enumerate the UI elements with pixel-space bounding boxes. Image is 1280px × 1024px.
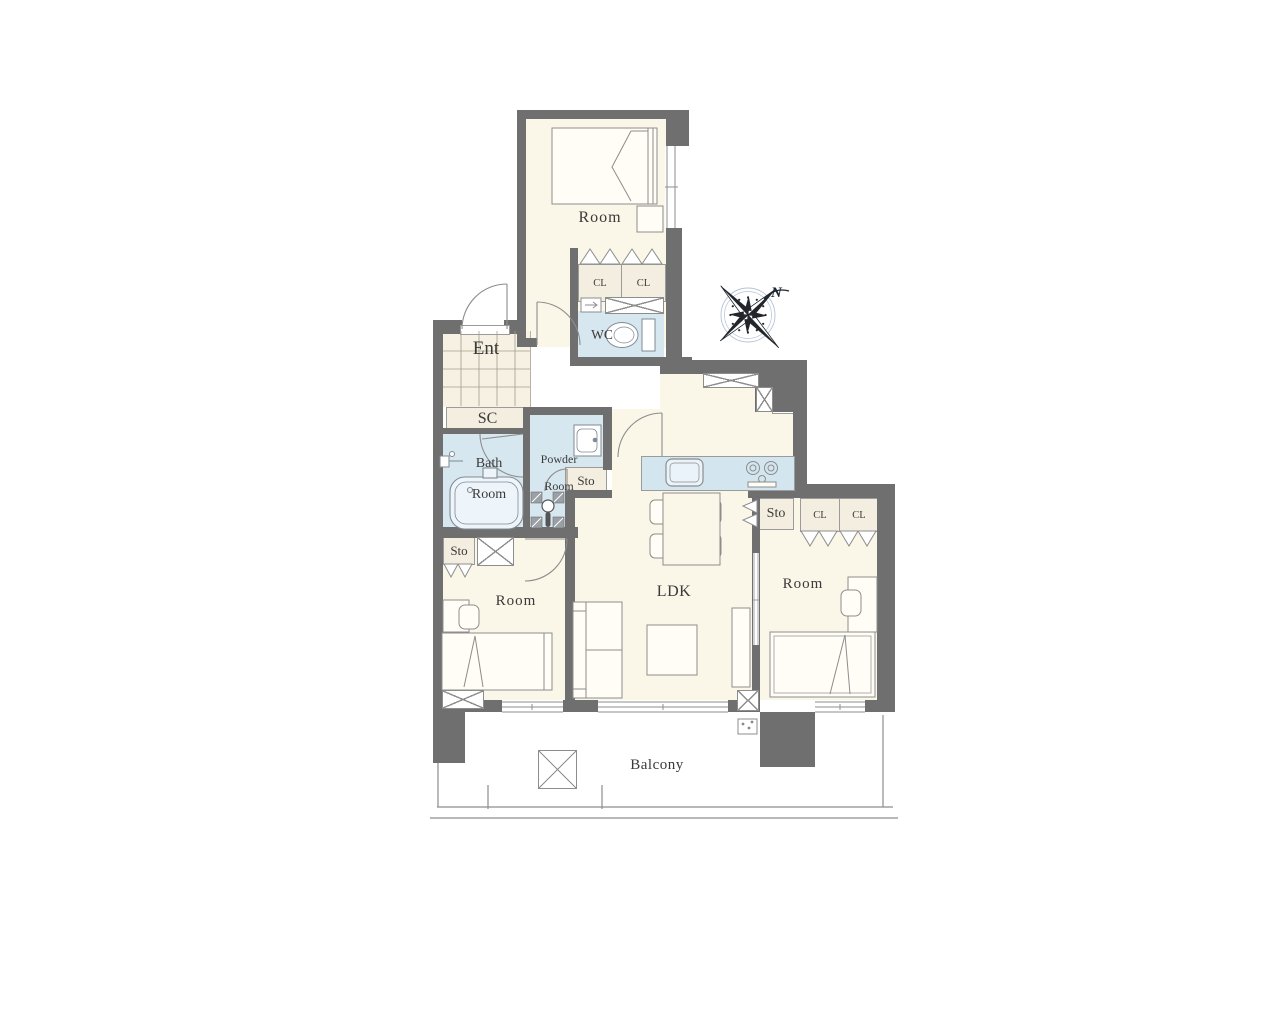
wc-label: WC	[580, 327, 624, 342]
bathroom-label: Bath Room	[442, 440, 522, 518]
room-left-label: Room	[476, 593, 556, 610]
room-right-label: Room	[763, 576, 843, 593]
ldk-label: LDK	[634, 583, 714, 601]
entrance-label: Ent	[456, 338, 516, 359]
floor-plan-canvas: SC CL CL Sto Sto CL CL Sto shelf	[0, 0, 1280, 1024]
balcony-label: Balcony	[607, 757, 707, 774]
bathroom-label-line1: Bath	[476, 456, 502, 471]
room-top-label: Room	[560, 209, 640, 227]
powder-room-label-line2: Room	[544, 479, 573, 493]
powder-room-label-line1: Powder	[541, 452, 578, 466]
kitchen-sink	[666, 459, 703, 486]
counter-fixtures-overlay	[0, 0, 1280, 1024]
kitchen-stove	[747, 462, 778, 488]
bathroom-label-line2: Room	[472, 487, 506, 502]
powder-room-label: Powder Room	[521, 440, 585, 507]
